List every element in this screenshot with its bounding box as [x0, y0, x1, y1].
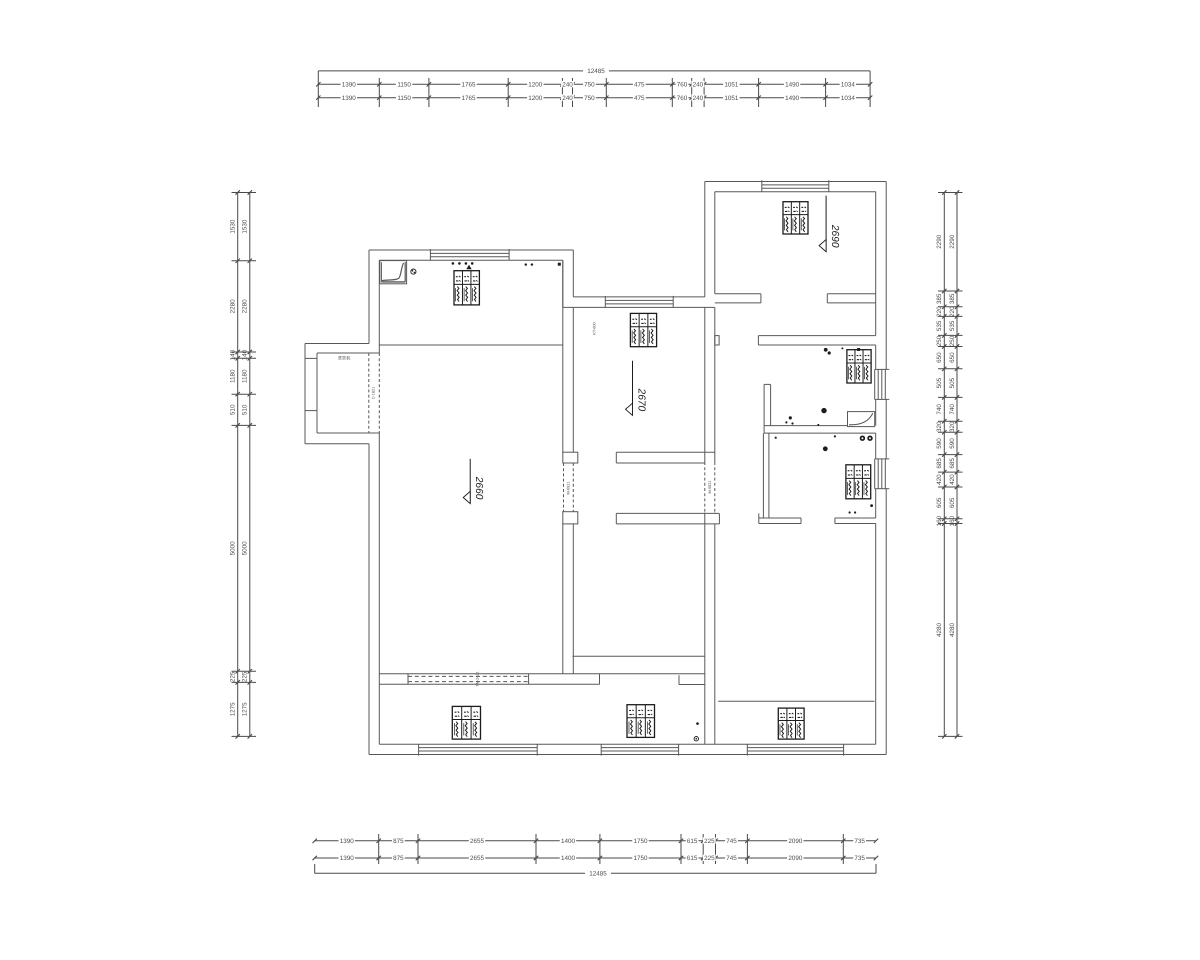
svg-text:1400: 1400 — [561, 855, 576, 862]
svg-text:420: 420 — [949, 474, 956, 485]
svg-text:505: 505 — [949, 377, 956, 388]
svg-text:1390: 1390 — [340, 838, 355, 845]
svg-text:225: 225 — [704, 838, 715, 845]
svg-text:2655: 2655 — [470, 855, 485, 862]
svg-text:1200: 1200 — [528, 95, 543, 102]
svg-text:735: 735 — [854, 855, 865, 862]
svg-text:240: 240 — [693, 95, 704, 102]
svg-text:1180: 1180 — [230, 369, 237, 383]
svg-text:2660: 2660 — [473, 476, 484, 500]
svg-text:535: 535 — [949, 320, 956, 331]
svg-text:12485: 12485 — [589, 871, 607, 878]
svg-text:1150: 1150 — [397, 95, 411, 102]
svg-text:1275: 1275 — [230, 702, 237, 717]
svg-text:220: 220 — [936, 306, 943, 317]
svg-text:2280: 2280 — [242, 299, 249, 314]
svg-text:225: 225 — [230, 671, 237, 682]
svg-text:250: 250 — [949, 335, 956, 346]
svg-text:160: 160 — [949, 515, 956, 526]
svg-text:510: 510 — [230, 404, 237, 415]
svg-text:750: 750 — [584, 95, 595, 102]
svg-text:240: 240 — [693, 82, 704, 89]
svg-text:2655: 2655 — [470, 838, 485, 845]
svg-text:475: 475 — [634, 82, 645, 89]
svg-text:1490: 1490 — [785, 82, 800, 89]
svg-text:760: 760 — [677, 82, 688, 89]
svg-text:615: 615 — [687, 838, 698, 845]
svg-text:1530: 1530 — [230, 219, 237, 234]
svg-text:250: 250 — [936, 335, 943, 346]
svg-text:KT-600: KT-600 — [593, 322, 597, 334]
svg-text:12485: 12485 — [587, 68, 605, 75]
svg-text:1150: 1150 — [397, 82, 411, 89]
svg-text:5000: 5000 — [242, 541, 249, 556]
svg-text:650: 650 — [936, 352, 943, 363]
svg-text:650: 650 — [949, 352, 956, 363]
svg-text:1390: 1390 — [342, 82, 357, 89]
svg-text:320: 320 — [936, 421, 943, 432]
svg-text:750: 750 — [584, 82, 595, 89]
svg-text:385: 385 — [949, 293, 956, 304]
svg-text:4280: 4280 — [949, 622, 956, 637]
svg-text:475: 475 — [634, 95, 645, 102]
svg-text:510: 510 — [242, 404, 249, 415]
svg-text:1390: 1390 — [340, 855, 355, 862]
svg-text:M-0921: M-0921 — [567, 482, 571, 495]
svg-text:TM-2421: TM-2421 — [476, 671, 480, 686]
svg-text:745: 745 — [726, 855, 737, 862]
svg-text:1034: 1034 — [841, 82, 856, 89]
svg-text:140: 140 — [242, 349, 249, 360]
svg-text:740: 740 — [949, 404, 956, 415]
svg-text:240: 240 — [562, 82, 573, 89]
svg-text:1765: 1765 — [462, 95, 477, 102]
svg-text:735: 735 — [854, 838, 865, 845]
svg-text:420: 420 — [936, 474, 943, 485]
svg-text:2290: 2290 — [949, 234, 956, 249]
svg-text:740: 740 — [936, 404, 943, 415]
svg-text:220: 220 — [949, 306, 956, 317]
svg-text:洗衣机: 洗衣机 — [338, 356, 351, 361]
svg-text:1750: 1750 — [633, 838, 648, 845]
svg-text:605: 605 — [936, 497, 943, 508]
svg-text:5000: 5000 — [230, 541, 237, 556]
svg-text:225: 225 — [242, 671, 249, 682]
svg-text:C-1821: C-1821 — [372, 387, 376, 399]
svg-text:1750: 1750 — [633, 855, 648, 862]
svg-text:685: 685 — [949, 458, 956, 469]
svg-text:590: 590 — [949, 438, 956, 449]
svg-text:590: 590 — [936, 438, 943, 449]
svg-text:2090: 2090 — [788, 838, 803, 845]
svg-text:605: 605 — [949, 497, 956, 508]
svg-text:140: 140 — [230, 349, 237, 360]
svg-text:1051: 1051 — [724, 95, 739, 102]
svg-text:875: 875 — [393, 855, 404, 862]
svg-text:2690: 2690 — [829, 224, 840, 248]
svg-text:320: 320 — [949, 421, 956, 432]
svg-text:M-0921: M-0921 — [708, 481, 712, 494]
svg-text:505: 505 — [936, 377, 943, 388]
svg-text:1490: 1490 — [785, 95, 800, 102]
svg-text:1180: 1180 — [242, 369, 249, 383]
svg-text:2090: 2090 — [788, 855, 803, 862]
svg-text:1530: 1530 — [242, 219, 249, 234]
svg-text:760: 760 — [677, 95, 688, 102]
svg-text:2280: 2280 — [230, 299, 237, 314]
svg-text:1765: 1765 — [462, 82, 477, 89]
svg-text:615: 615 — [687, 855, 698, 862]
svg-text:1390: 1390 — [342, 95, 357, 102]
svg-text:4280: 4280 — [936, 622, 943, 637]
svg-text:2670: 2670 — [636, 388, 647, 412]
svg-text:685: 685 — [936, 458, 943, 469]
svg-text:875: 875 — [393, 838, 404, 845]
svg-text:225: 225 — [704, 855, 715, 862]
svg-text:160: 160 — [936, 515, 943, 526]
svg-text:745: 745 — [726, 838, 737, 845]
svg-text:1200: 1200 — [528, 82, 543, 89]
svg-text:1400: 1400 — [561, 838, 576, 845]
svg-text:240: 240 — [562, 95, 573, 102]
svg-text:1034: 1034 — [841, 95, 856, 102]
svg-text:535: 535 — [936, 320, 943, 331]
svg-text:385: 385 — [936, 293, 943, 304]
svg-text:1051: 1051 — [724, 82, 739, 89]
svg-text:2290: 2290 — [936, 234, 943, 249]
svg-text:1275: 1275 — [242, 702, 249, 717]
